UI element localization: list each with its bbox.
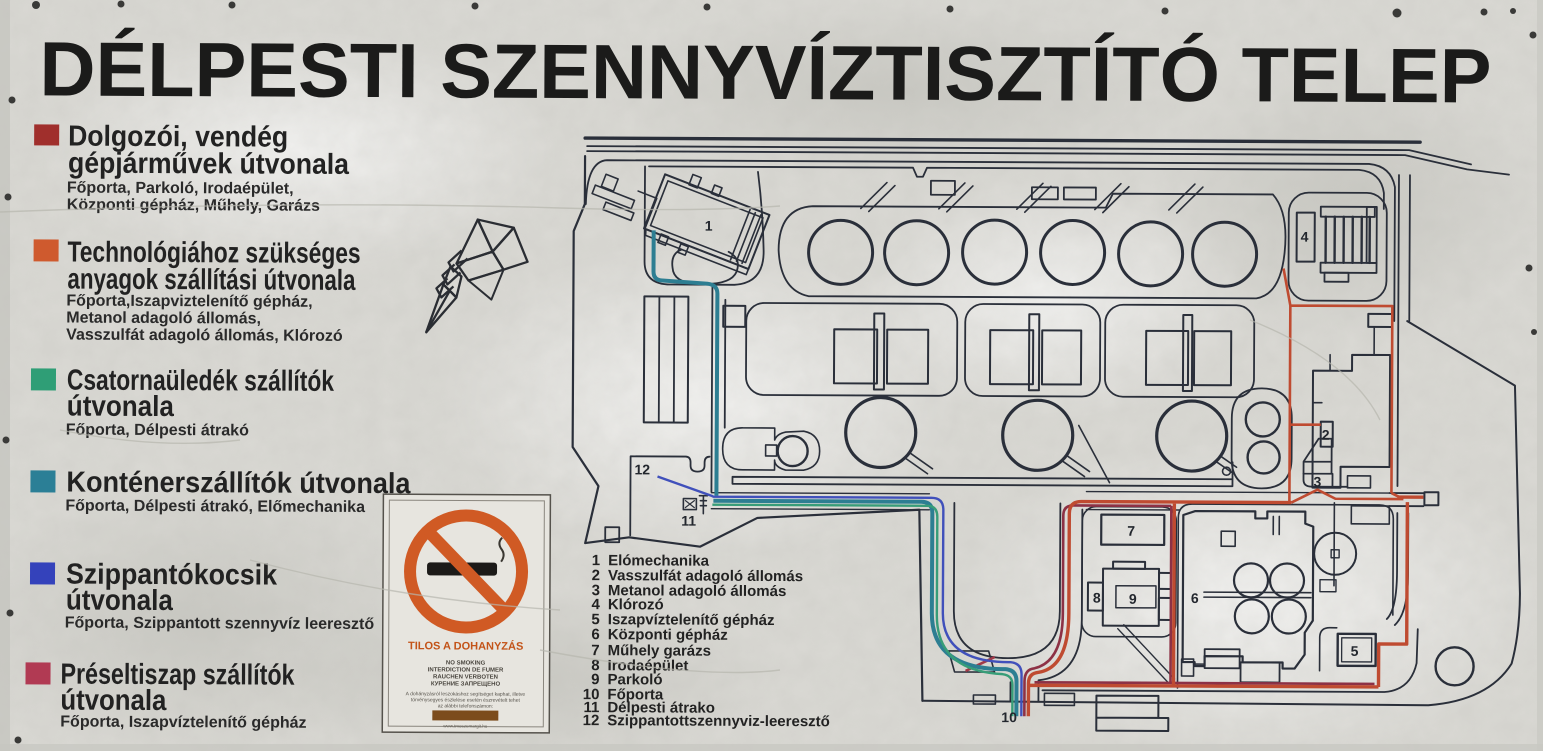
svg-text:útvonala: útvonala (67, 391, 175, 424)
svg-text:КУРЕНИЕ ЗАПРЕЩЕНО: КУРЕНИЕ ЗАПРЕЩЕНО (431, 681, 501, 687)
svg-text:Metanol adagoló állomás,: Metanol adagoló állomás, (66, 310, 261, 328)
svg-text:3: 3 (1313, 474, 1321, 490)
svg-text:10: 10 (1001, 709, 1017, 725)
svg-text:gépjárművek útvonala: gépjárművek útvonala (68, 148, 350, 181)
svg-text:8: 8 (1093, 590, 1101, 606)
svg-text:2: 2 (1322, 427, 1330, 443)
svg-text:6: 6 (591, 626, 599, 643)
svg-text:www.tmoszemargit.hu: www.tmoszemargit.hu (443, 723, 488, 728)
svg-text:7: 7 (1127, 523, 1135, 539)
svg-text:Főporta,Iszapviztelenítő géphá: Főporta,Iszapviztelenítő gépház, (66, 293, 312, 311)
svg-text:4: 4 (1301, 229, 1309, 245)
svg-text:12: 12 (583, 712, 600, 729)
svg-text:az alábbi telefonszámon:: az alábbi telefonszámon: (438, 703, 493, 709)
svg-text:Szippantottszennyviz-leeresztő: Szippantottszennyviz-leeresztő (607, 712, 830, 730)
svg-text:Konténerszállítók útvonala: Konténerszállítók útvonala (66, 467, 411, 501)
svg-text:1: 1 (705, 218, 713, 234)
svg-text:Főporta, Parkoló, Irodaépület,: Főporta, Parkoló, Irodaépület, (67, 180, 294, 198)
svg-text:Főporta, Szippantott szennyvíz: Főporta, Szippantott szennyvíz leeresztő (65, 615, 375, 634)
svg-text:útvonala: útvonala (60, 685, 167, 718)
svg-text:INTERDICTION DE FUMER: INTERDICTION DE FUMER (428, 667, 504, 673)
svg-text:Főporta, Iszapvíztelenítő géph: Főporta, Iszapvíztelenítő gépház (60, 714, 306, 732)
svg-text:DÉLPESTI SZENNYVÍZTISZTÍTÓ TEL: DÉLPESTI SZENNYVÍZTISZTÍTÓ TELEP (39, 26, 1491, 119)
svg-text:Vasszulfát adagoló állomás, Kl: Vasszulfát adagoló állomás, Klórozó (66, 327, 343, 345)
svg-text:9: 9 (1129, 591, 1137, 607)
svg-text:12: 12 (634, 461, 650, 477)
svg-text:TILOS A DOHANYZÁS: TILOS A DOHANYZÁS (408, 639, 523, 653)
svg-text:11: 11 (681, 513, 696, 529)
svg-text:Főporta, Délpesti átrakó, Előm: Főporta, Délpesti átrakó, Előmechanika (65, 498, 365, 516)
svg-text:Központi gépház: Központi gépház (608, 626, 728, 644)
svg-text:útvonala: útvonala (66, 585, 174, 618)
svg-text:RAUCHEN VERBOTEN: RAUCHEN VERBOTEN (433, 674, 498, 680)
svg-text:Főporta, Délpesti átrakó: Főporta, Délpesti átrakó (66, 422, 249, 440)
svg-text:6: 6 (1191, 590, 1199, 606)
svg-text:NO SMOKING: NO SMOKING (446, 660, 486, 666)
svg-text:5: 5 (1351, 643, 1359, 659)
